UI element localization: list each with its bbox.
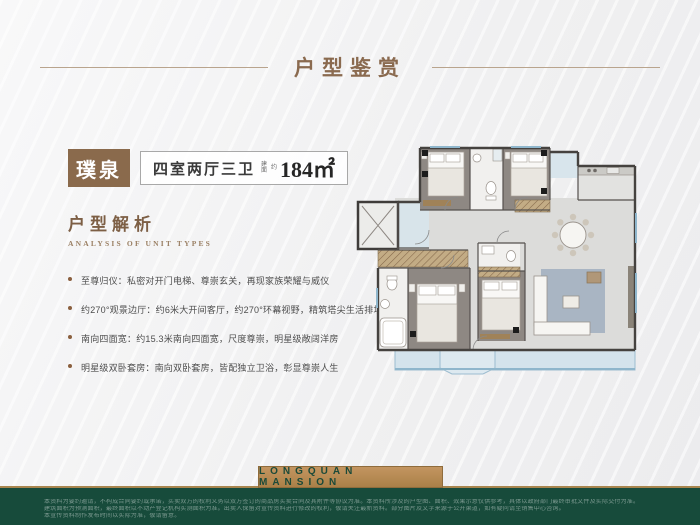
unit-info-row: 璞泉 四室两厅三卫 建面 约 184㎡ <box>68 149 348 187</box>
wardrobe <box>478 267 520 277</box>
area-approx-label: 约 <box>271 165 279 172</box>
title-rule-right <box>432 67 660 68</box>
unit-area-value: 184㎡ <box>280 152 335 184</box>
room-balcony <box>395 348 635 374</box>
disclaimer-line: 本资料为要约邀请，不构成合同要约或承诺，买卖双方的权利义务以双方签订的商品房买卖… <box>44 499 656 506</box>
elevator-shaft <box>358 202 398 249</box>
analysis-bullet: 南向四面宽：约15.3米南向四面宽，尺度尊崇，明星级敞阔洋房 <box>68 332 348 345</box>
page-title: 户型鉴赏 <box>294 52 406 82</box>
analysis-bullet: 约270°观景边厅：约6米大开间客厅，约270°环幕视野，精筑塔尖生活排场 <box>68 303 348 316</box>
footer-band: 本资料为要约邀请，不构成合同要约或承诺，买卖双方的权利义务以双方签订的商品房买卖… <box>0 488 700 525</box>
title-rule-left <box>40 67 268 68</box>
analysis-bullet-list: 至尊归仪：私密对开门电梯、尊崇玄关，再现家族荣耀与威仪 约270°观景边厅：约6… <box>68 274 348 374</box>
brand-logo-plate: LONGQUAN MANSION <box>258 466 443 488</box>
page-header: 户型鉴赏 <box>0 52 700 82</box>
wardrobe <box>378 250 468 267</box>
dining-table <box>552 214 594 256</box>
analysis-title: 户型解析 <box>68 210 348 235</box>
analysis-bullet: 明星级双卧套房：南向双卧套房，皆配独立卫浴，彰显尊崇人生 <box>68 361 348 374</box>
bed <box>505 152 547 196</box>
kitchen-counter <box>578 166 635 175</box>
unit-name-badge: 璞泉 <box>68 149 130 187</box>
analysis-subtitle: ANALYSIS OF UNIT TYPES <box>68 239 348 248</box>
bed <box>409 284 465 342</box>
unit-spec-badge: 四室两厅三卫 建面 约 184㎡ <box>140 151 348 185</box>
disclaimer-line: 建筑面积为预测面积，最终面积以不动产登记机构实测面积为准。出卖人保留对宣传资料进… <box>44 506 656 513</box>
floor-plan <box>345 138 645 378</box>
analysis-bullet: 至尊归仪：私密对开门电梯、尊崇玄关，再现家族荣耀与威仪 <box>68 274 348 287</box>
unit-layout-label: 四室两厅三卫 <box>153 158 255 179</box>
room-void <box>550 152 578 178</box>
analysis-section: 户型解析 ANALYSIS OF UNIT TYPES 至尊归仪：私密对开门电梯… <box>68 210 348 390</box>
area-prefix-label: 建面 <box>261 162 269 175</box>
disclaimer-line: 本宣传资料制作发布时间以实际为准，敬请留意。 <box>44 513 656 520</box>
floor-plan-drawing <box>345 138 645 378</box>
brochure-page: 户型鉴赏 璞泉 四室两厅三卫 建面 约 184㎡ 户型解析 ANALYSIS O… <box>0 0 700 525</box>
